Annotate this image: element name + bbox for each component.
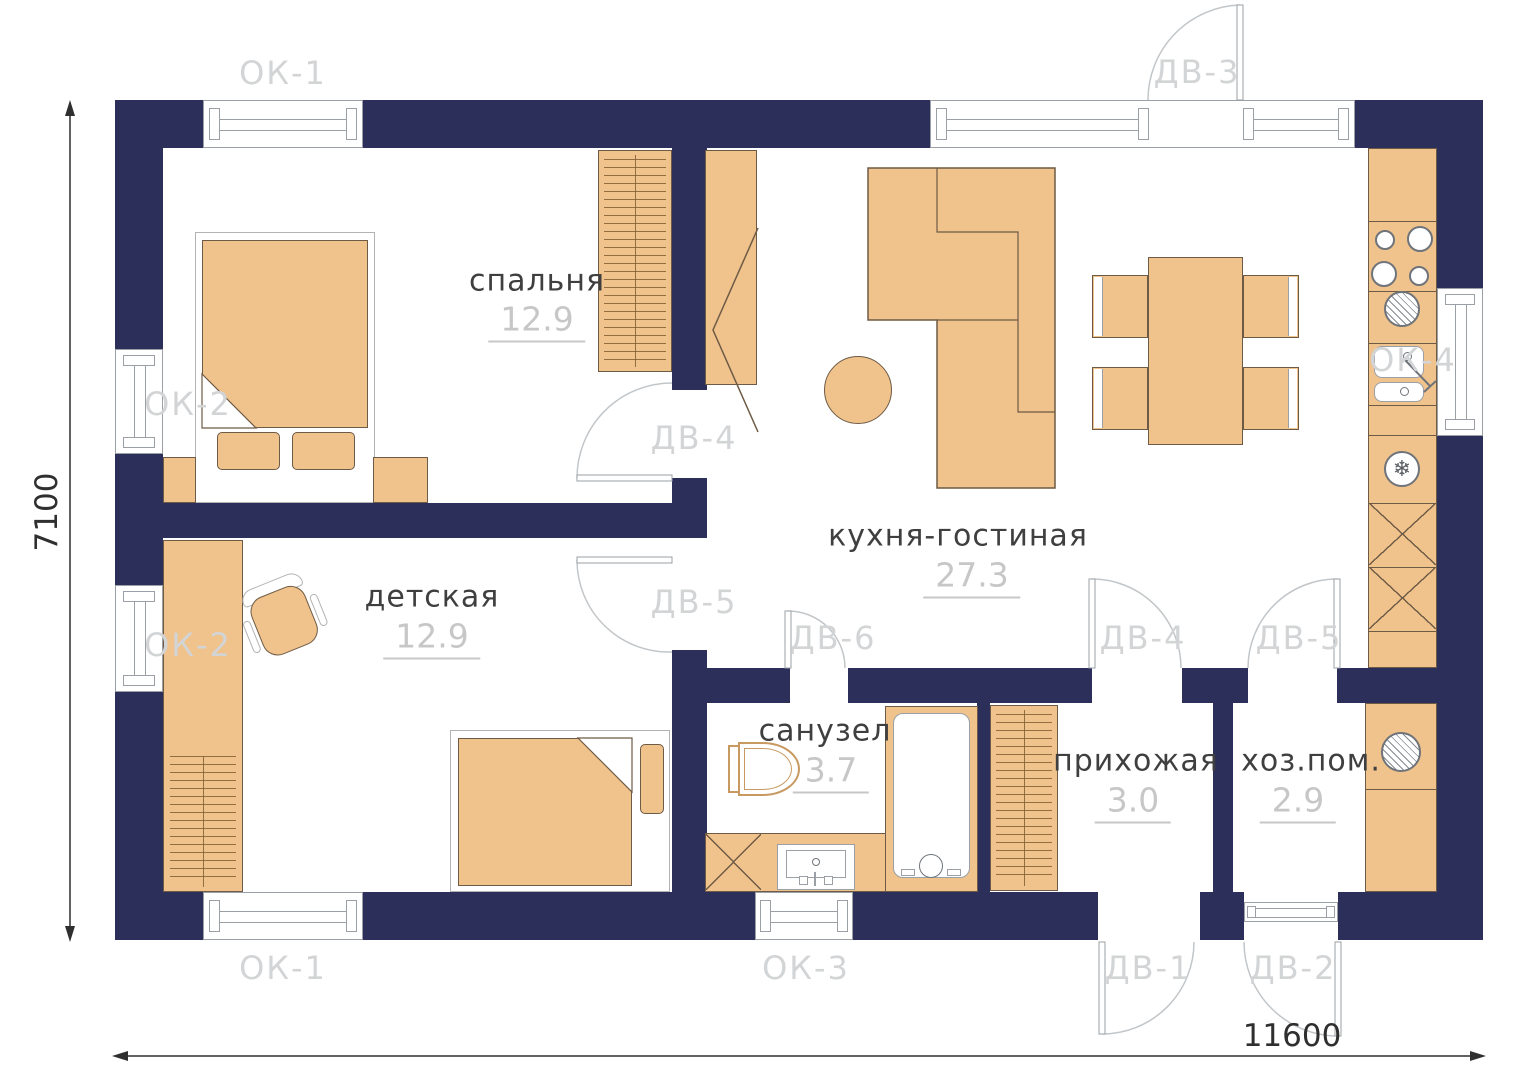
floor-plan: ❄ [0,0,1528,1080]
dimension-height-label: 7100 [29,473,65,552]
arrowhead-up [65,100,75,116]
label-kitchen-name: кухня-гостиная [828,519,1088,554]
label-hallway-name: прихожая [1053,744,1219,779]
closet-open-doors-chevron [713,228,758,432]
dimension-width-label: 11600 [1243,1018,1342,1054]
label-window-ok1-top: ОК-1 [239,54,327,92]
sofa-outline [868,168,1055,488]
label-window-ok1-bottom: ОК-1 [239,949,327,987]
label-door-dv4-hallway: ДВ-4 [1100,619,1187,657]
door-leaf [1089,579,1095,668]
label-bathroom-area: 3.7 [793,751,869,794]
label-bedroom-name: спальня [469,264,605,299]
plan-linework-overlay [0,0,1528,1080]
label-door-dv4-bedroom: ДВ-4 [651,419,738,457]
label-door-dv6-bathroom: ДВ-6 [790,619,877,657]
label-door-dv1: ДВ-1 [1105,949,1192,987]
label-bathroom-name: санузел [759,714,892,749]
label-hallway-area: 3.0 [1095,781,1171,824]
dimension-line-vertical [65,100,75,942]
label-utility-area: 2.9 [1260,781,1336,824]
door-leaf [577,557,672,563]
label-door-dv5-nursery: ДВ-5 [651,583,738,621]
label-utility-name: хоз.пом. [1241,744,1381,779]
label-nursery-name: детская [365,580,500,615]
label-window-ok4: ОК-4 [1369,341,1457,379]
label-door-dv2: ДВ-2 [1250,949,1337,987]
label-window-ok2-nursery: ОК-2 [144,626,232,664]
arrowhead-left [112,1051,128,1061]
arrowhead-right [1470,1051,1486,1061]
label-kitchen-area: 27.3 [923,556,1020,599]
label-bedroom-area: 12.9 [488,300,585,343]
label-window-ok3: ОК-3 [762,949,850,987]
label-window-ok2-bedroom: ОК-2 [144,385,232,423]
nursery-blanket-fold [578,738,632,792]
living-room-sofa [868,168,1055,488]
label-nursery-area: 12.9 [383,617,480,660]
arrowhead-down [65,926,75,942]
label-door-dv3: ДВ-3 [1154,53,1241,91]
door-leaf [577,475,672,481]
label-door-dv5-utility: ДВ-5 [1256,619,1343,657]
